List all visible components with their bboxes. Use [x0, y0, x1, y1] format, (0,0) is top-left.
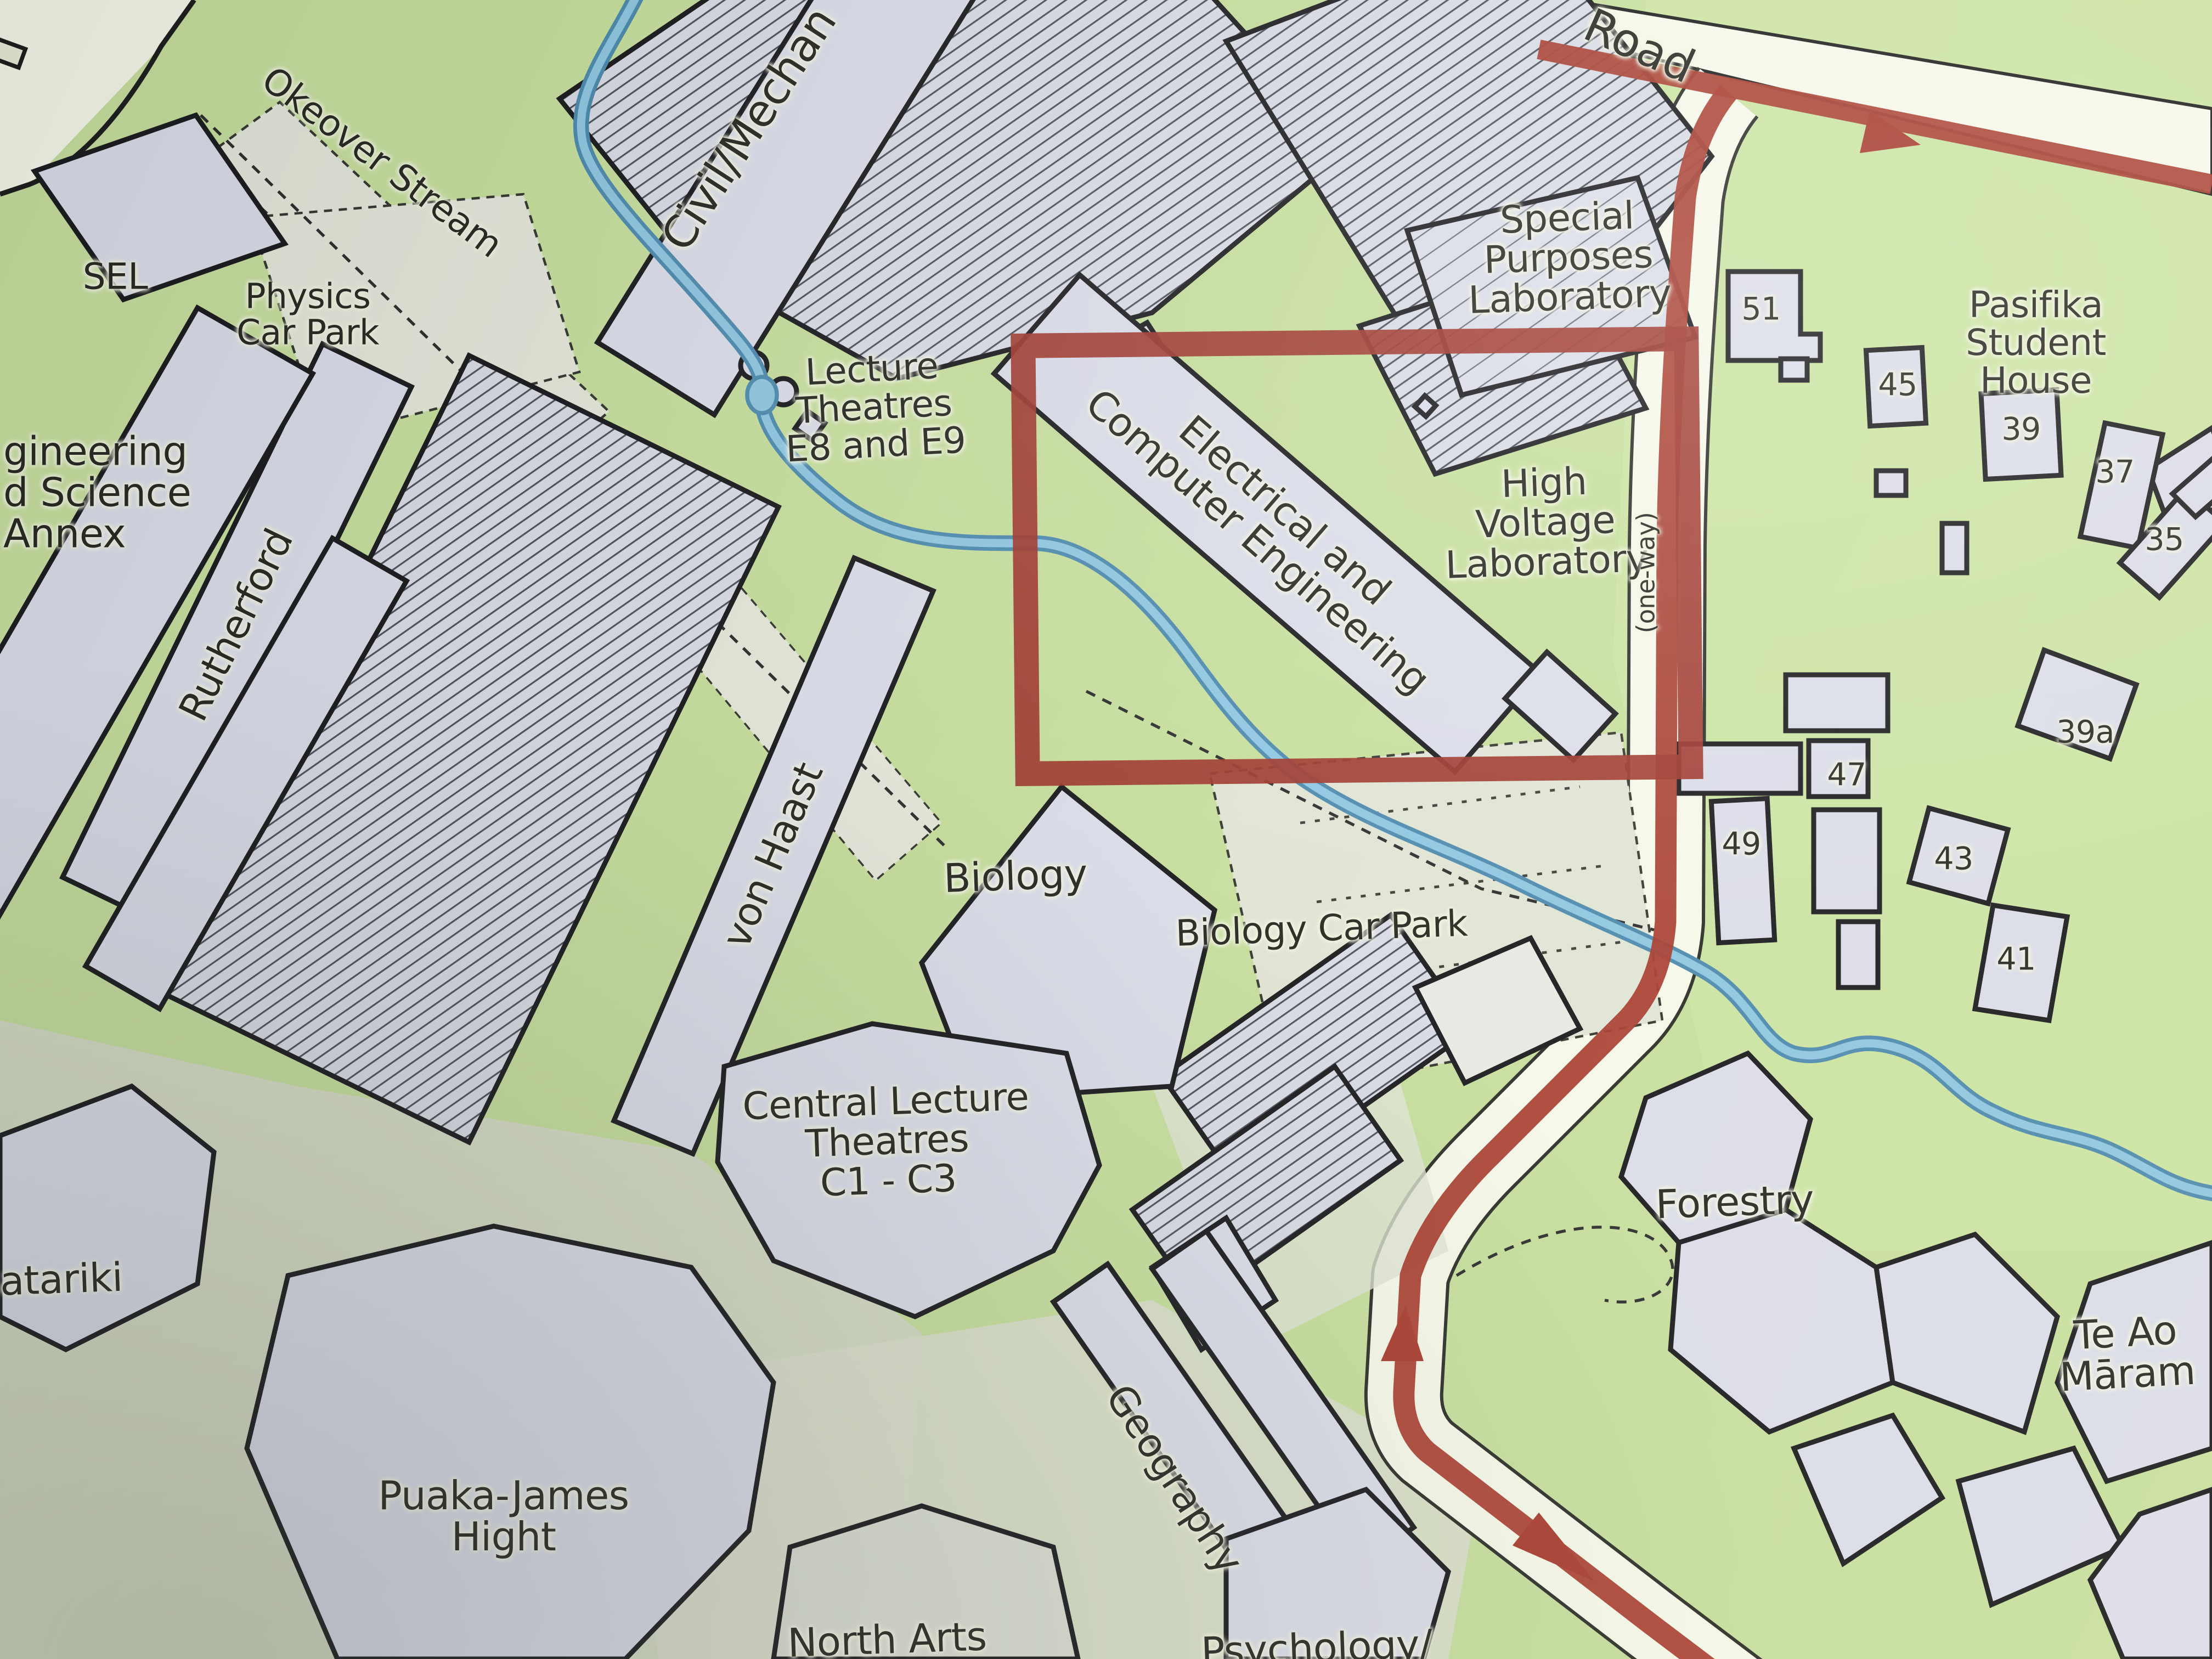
label-sel: SEL — [83, 261, 148, 299]
label-rutherford: Rutherford — [173, 523, 301, 727]
label-one-way: (one-way) — [1635, 512, 1661, 634]
label-engineering-science-annex: gineering d Science Annex — [3, 432, 191, 556]
label-te-ao-marama: Te Ao Māram — [2057, 1310, 2197, 1399]
label-geography: Geography — [1098, 1378, 1249, 1581]
label-okeover-stream: Okeover Stream — [253, 63, 507, 267]
label-house-45: 45 — [1878, 370, 1917, 403]
label-pasifika-student-house: Pasifika Student House — [1948, 289, 2124, 402]
campus-map-photo: Okeover Stream SEL Physics Car Park Civi… — [0, 0, 2212, 1659]
label-electrical-computer-engineering: Electrical and Computer Engineering — [1078, 352, 1464, 702]
label-central-lecture-theatres: Central Lecture Theatres C1 - C3 — [742, 1080, 1032, 1207]
map-canvas: Okeover Stream SEL Physics Car Park Civi… — [0, 0, 2212, 1659]
label-house-49: 49 — [1722, 830, 1760, 862]
label-house-51: 51 — [1741, 295, 1780, 327]
label-lecture-theatres: Lecture Theatres E8 and E9 — [781, 349, 967, 471]
label-forestry: Forestry — [1655, 1180, 1815, 1227]
label-civil-mechanical: Civil/Mechan — [655, 1, 846, 259]
label-house-39a: 39a — [2056, 718, 2114, 750]
label-house-47: 47 — [1827, 760, 1866, 793]
label-von-haast: von Haast — [716, 758, 831, 955]
label-physics-car-park: Physics Car Park — [236, 280, 379, 352]
label-road: Road — [1577, 1, 1701, 92]
label-special-purposes: Special Purposes Laboratory — [1465, 198, 1672, 323]
label-biology-car-park: Biology Car Park — [1175, 907, 1468, 955]
label-house-41: 41 — [1996, 945, 2035, 977]
label-high-voltage-laboratory: High Voltage Laboratory — [1442, 462, 1649, 588]
label-puaka-james-hight: Puaka-James Hight — [378, 1476, 629, 1559]
label-north-arts: North Arts — [787, 1617, 987, 1659]
label-house-37: 37 — [2095, 458, 2134, 490]
label-matariki: atariki — [0, 1258, 123, 1304]
label-biology: Biology — [943, 854, 1088, 900]
label-house-43: 43 — [1934, 844, 1973, 877]
label-psychology: Psychology/ — [1200, 1624, 1433, 1659]
label-house-35: 35 — [2145, 525, 2183, 557]
label-house-39: 39 — [2001, 415, 2040, 447]
map-labels: Okeover Stream SEL Physics Car Park Civi… — [0, 0, 2212, 1659]
